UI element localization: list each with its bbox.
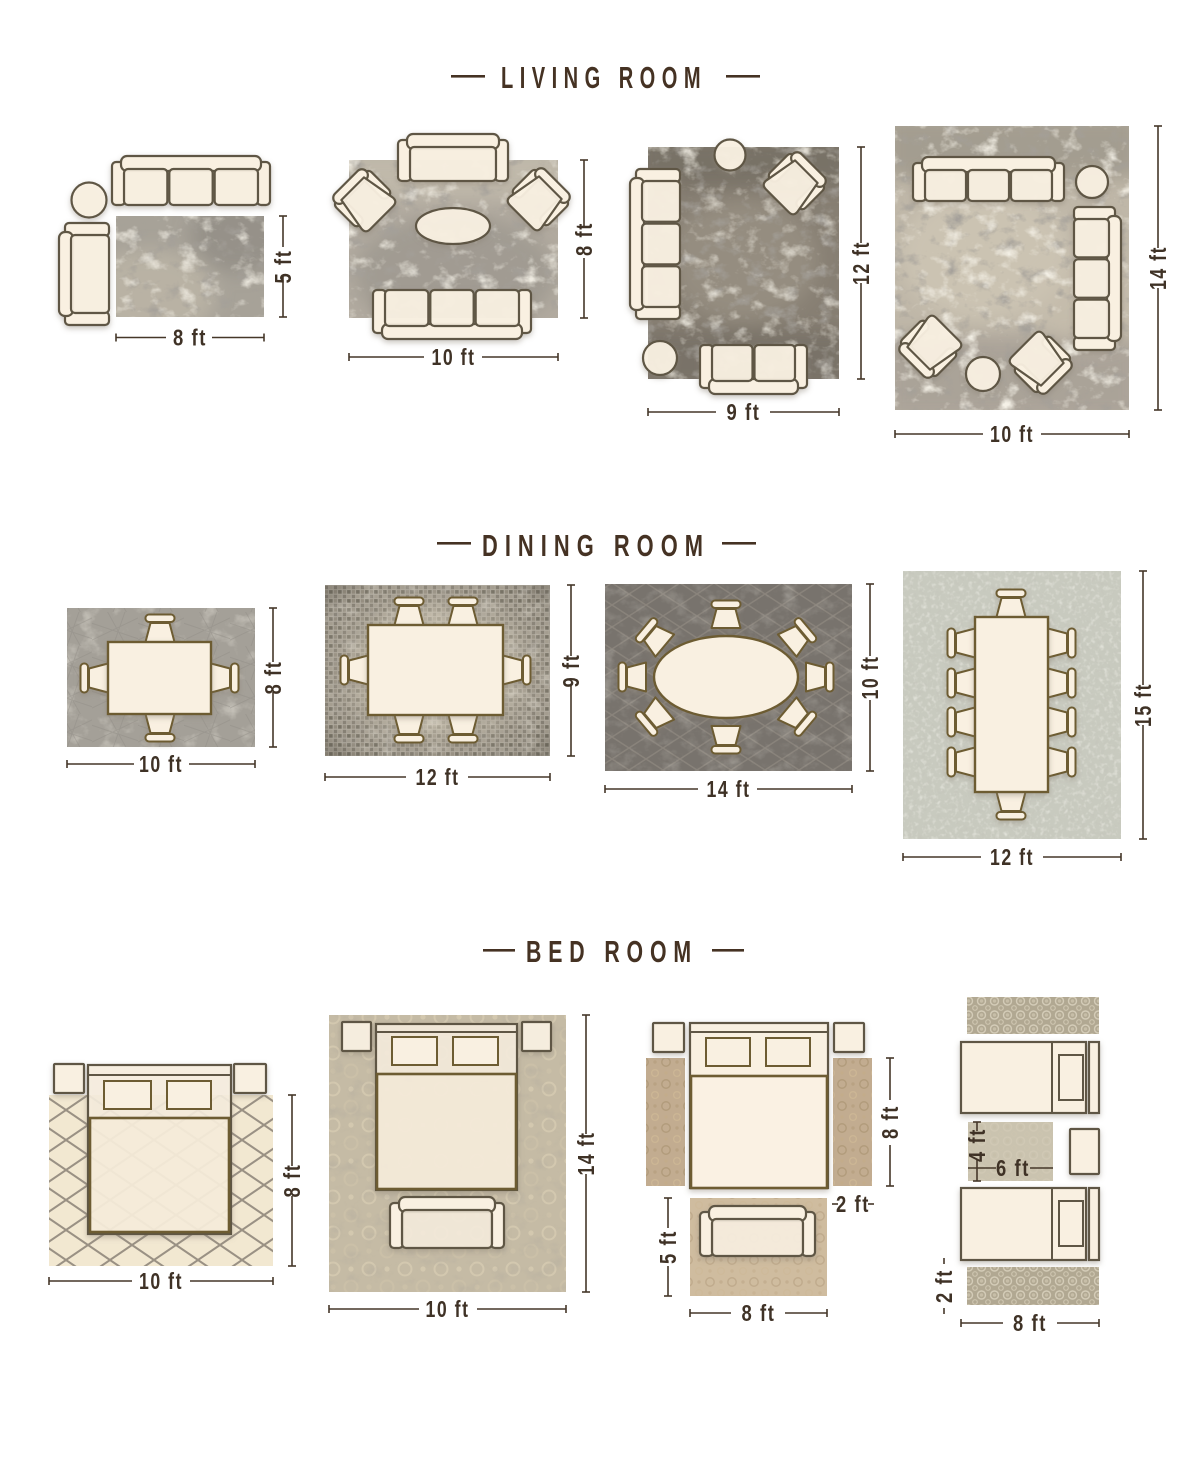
svg-text:8 ft: 8 ft (742, 1300, 776, 1326)
svg-text:BED ROOM: BED ROOM (526, 934, 698, 969)
svg-text:9 ft: 9 ft (727, 399, 761, 425)
svg-text:10 ft: 10 ft (857, 656, 883, 700)
svg-text:8 ft: 8 ft (260, 661, 286, 695)
svg-text:15 ft: 15 ft (1130, 683, 1156, 727)
svg-text:LIVING ROOM: LIVING ROOM (501, 60, 707, 95)
svg-text:8 ft: 8 ft (1013, 1310, 1047, 1336)
svg-text:10 ft: 10 ft (139, 1268, 183, 1294)
svg-text:8 ft: 8 ft (279, 1164, 305, 1198)
svg-text:4 ft: 4 ft (964, 1128, 990, 1162)
svg-text:10 ft: 10 ft (426, 1296, 470, 1322)
svg-text:6 ft: 6 ft (996, 1155, 1030, 1181)
svg-text:DINING ROOM: DINING ROOM (482, 528, 710, 563)
svg-text:12 ft: 12 ft (990, 844, 1034, 870)
svg-text:12 ft: 12 ft (416, 764, 460, 790)
svg-text:10 ft: 10 ft (990, 421, 1034, 447)
svg-text:14 ft: 14 ft (1145, 246, 1171, 290)
svg-text:8 ft: 8 ft (173, 325, 207, 351)
svg-text:10 ft: 10 ft (139, 751, 183, 777)
svg-text:9 ft: 9 ft (558, 654, 584, 688)
svg-text:8 ft: 8 ft (877, 1105, 903, 1139)
svg-text:8 ft: 8 ft (571, 222, 597, 256)
svg-text:5 ft: 5 ft (270, 250, 296, 284)
svg-text:14 ft: 14 ft (573, 1132, 599, 1176)
svg-text:2 ft: 2 ft (836, 1191, 870, 1217)
svg-text:12 ft: 12 ft (848, 241, 874, 285)
svg-text:14 ft: 14 ft (707, 776, 751, 802)
svg-text:2 ft: 2 ft (931, 1269, 957, 1303)
svg-text:10 ft: 10 ft (432, 344, 476, 370)
svg-text:5 ft: 5 ft (655, 1230, 681, 1264)
